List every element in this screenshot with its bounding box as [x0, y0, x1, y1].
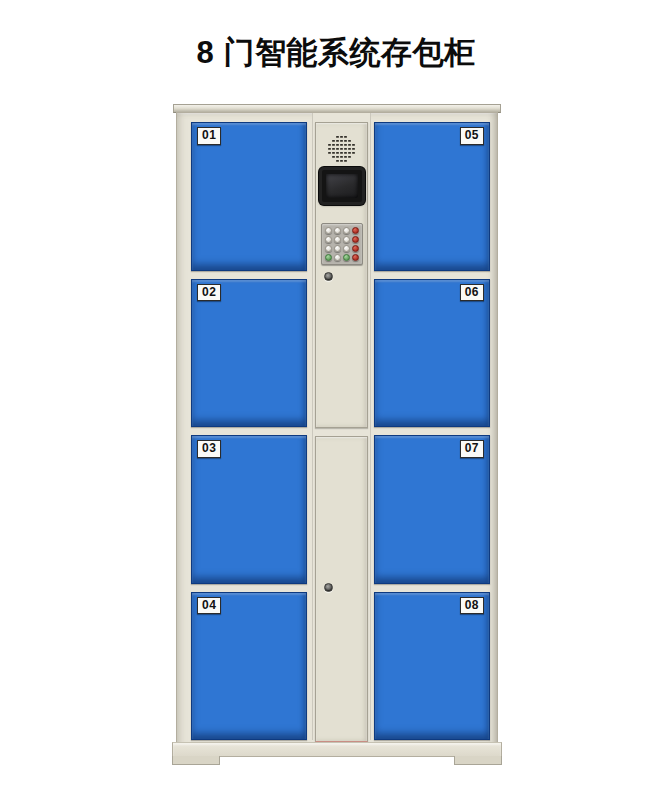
right-door-column: 05 06 07 08 [374, 122, 490, 740]
keypad-button [343, 227, 350, 234]
door-number-plate: 08 [460, 597, 484, 615]
keypad-button [325, 236, 332, 243]
left-door-column: 01 02 03 04 [191, 122, 307, 740]
keypad-button [334, 254, 341, 261]
locker-cabinet: 01 02 03 04 [176, 104, 498, 765]
keypad-button [334, 245, 341, 252]
keypad-button [334, 227, 341, 234]
keypad-button [343, 245, 350, 252]
locker-door-02: 02 [191, 279, 307, 428]
keyhole-icon [324, 583, 333, 592]
door-number-plate: 03 [197, 440, 221, 458]
cabinet-foot-left [172, 756, 220, 765]
keypad-button [343, 236, 350, 243]
keypad-button [325, 254, 332, 261]
cabinet-foot-right [454, 756, 502, 765]
keypad-button [334, 236, 341, 243]
keypad-button [352, 236, 359, 243]
door-number-plate: 07 [460, 440, 484, 458]
locker-door-06: 06 [374, 279, 490, 428]
keypad-button [352, 227, 359, 234]
keypad-button [325, 245, 332, 252]
keypad-button [352, 245, 359, 252]
door-number-plate: 01 [197, 127, 221, 145]
locker-door-08: 08 [374, 592, 490, 741]
product-title: 8 门智能系统存包柜 [0, 36, 650, 70]
locker-door-01: 01 [191, 122, 307, 271]
center-control-column [312, 113, 371, 740]
door-number-plate: 04 [197, 597, 221, 615]
door-number-plate: 02 [197, 284, 221, 302]
display-screen [319, 167, 365, 205]
center-lower-panel [315, 436, 368, 742]
display-screen-glass [326, 174, 358, 198]
cabinet-base [172, 742, 502, 757]
keypad [321, 223, 363, 265]
keypad-button [352, 254, 359, 261]
door-number-plate: 05 [460, 127, 484, 145]
control-panel [315, 122, 368, 428]
cabinet-body: 01 02 03 04 [176, 112, 498, 757]
locker-door-05: 05 [374, 122, 490, 271]
locker-door-03: 03 [191, 435, 307, 584]
locker-door-07: 07 [374, 435, 490, 584]
keyhole-icon [324, 272, 333, 281]
keypad-button [325, 227, 332, 234]
speaker-icon [328, 135, 356, 163]
locker-door-04: 04 [191, 592, 307, 741]
keypad-button [343, 254, 350, 261]
door-number-plate: 06 [460, 284, 484, 302]
